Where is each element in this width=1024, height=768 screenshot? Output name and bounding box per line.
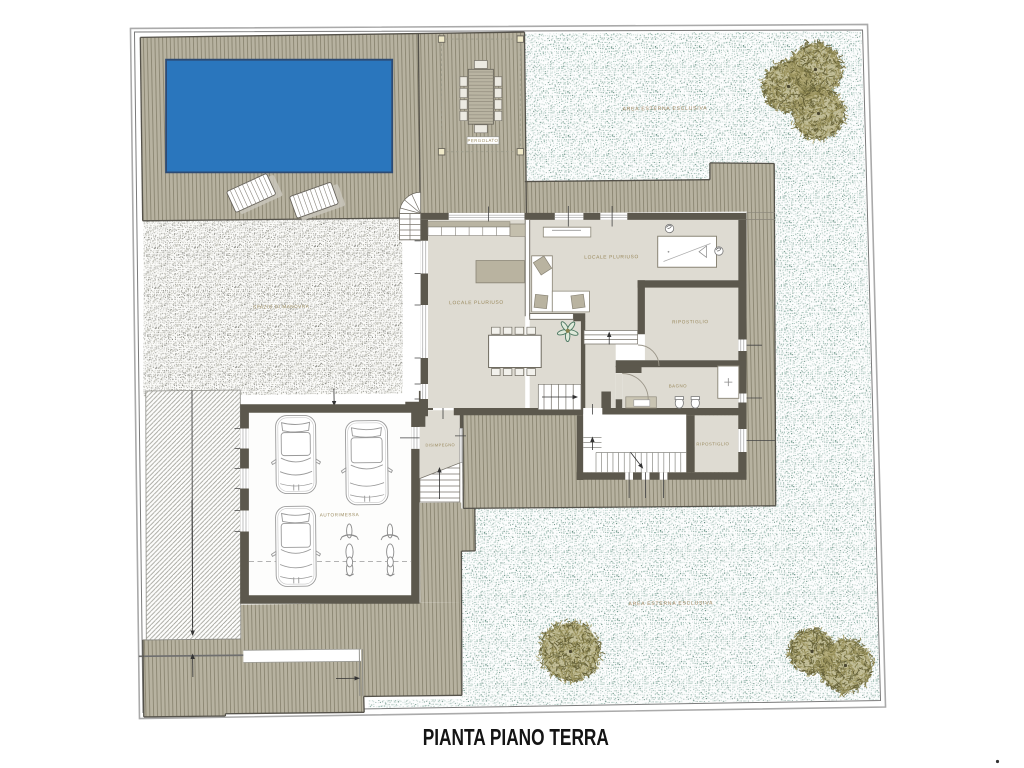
svg-text:SPAZIO DI MANOVRA: SPAZIO DI MANOVRA <box>253 304 310 310</box>
svg-text:AREA ESTERNA ESCLUSIVA: AREA ESTERNA ESCLUSIVA <box>623 106 708 113</box>
svg-text:AREA ESTERNA ESCLUSIVA: AREA ESTERNA ESCLUSIVA <box>628 600 713 607</box>
svg-text:LOCALE PLURIUSO: LOCALE PLURIUSO <box>584 254 639 261</box>
svg-text:PERGOLATO: PERGOLATO <box>468 138 499 143</box>
svg-text:AUTORIMESSA: AUTORIMESSA <box>320 512 360 517</box>
svg-text:RIPOSTIGLIO: RIPOSTIGLIO <box>672 319 709 324</box>
svg-text:RIPOSTIGLIO: RIPOSTIGLIO <box>696 441 729 446</box>
svg-text:BAGNO: BAGNO <box>669 383 687 388</box>
svg-text:PIANTA PIANO TERRA: PIANTA PIANO TERRA <box>423 724 609 750</box>
svg-text:DISIMPEGNO: DISIMPEGNO <box>425 442 455 447</box>
svg-text:LOCALE PLURIUSO: LOCALE PLURIUSO <box>449 300 504 307</box>
